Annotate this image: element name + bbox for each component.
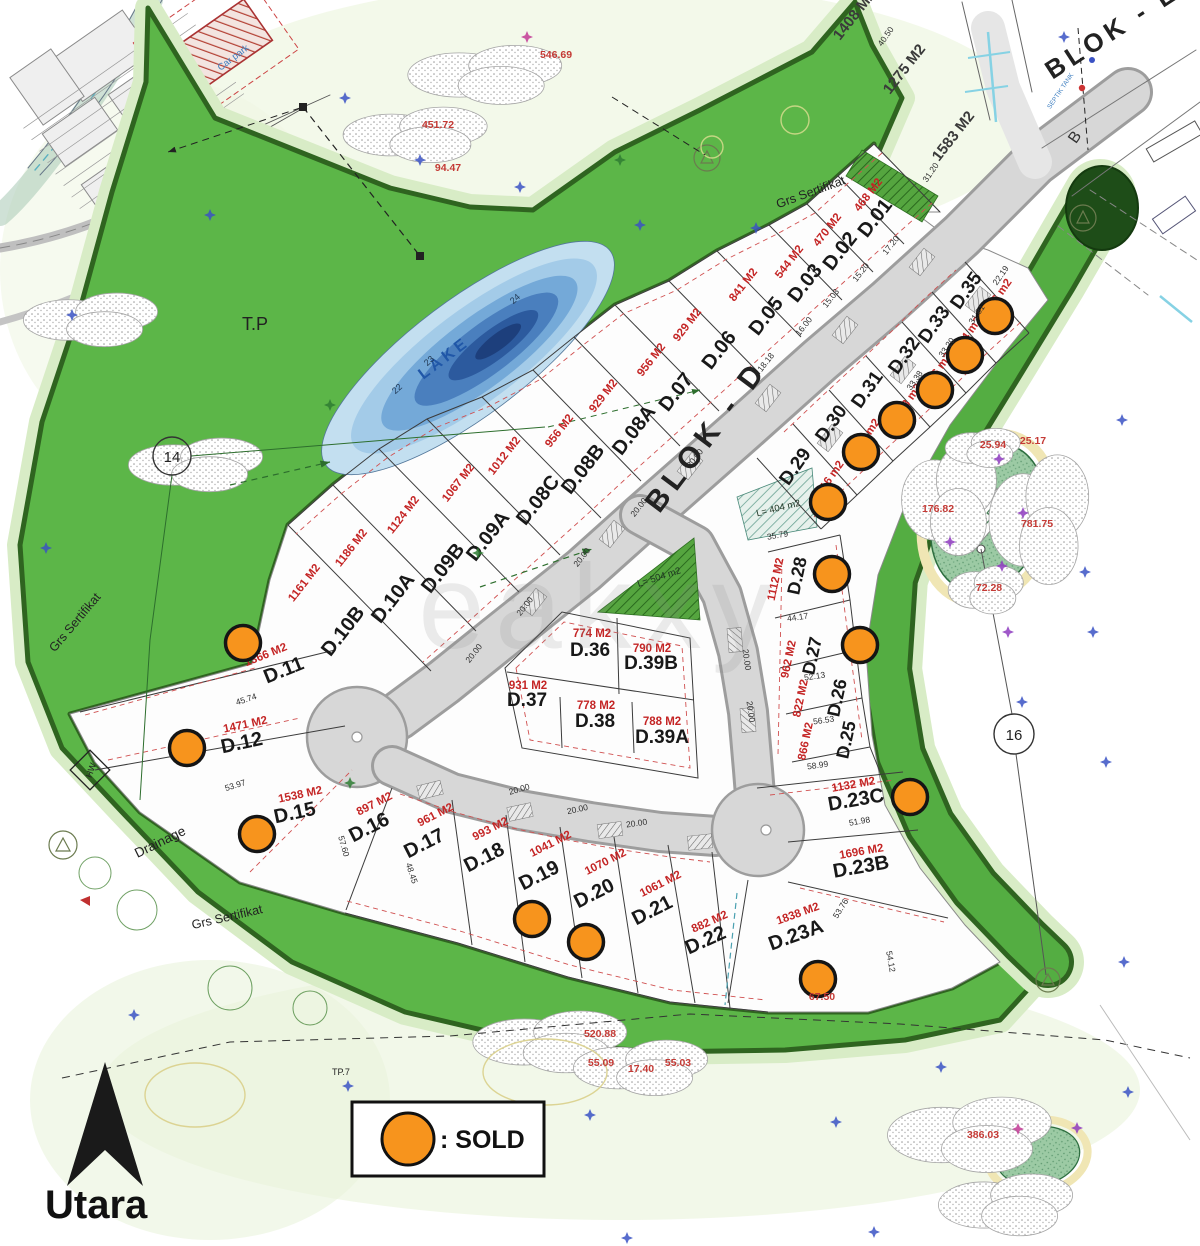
elevation-label: 72.28	[976, 582, 1002, 594]
ref-16-label: 16	[1006, 727, 1023, 744]
legend-sold-swatch	[382, 1113, 434, 1165]
sold-marker	[170, 731, 205, 766]
elevation-label: 176.82	[922, 503, 954, 515]
ref-circle-16: 16	[994, 714, 1034, 754]
elevation-label: 94.47	[435, 162, 461, 174]
plot-label: D.37	[507, 690, 547, 711]
plot-area-label: 788 M2	[643, 716, 681, 728]
sold-marker	[880, 403, 915, 438]
sold-marker	[569, 925, 604, 960]
plot-label: D.38	[575, 711, 615, 732]
elevation-label: 25.94	[980, 439, 1006, 451]
plot-label: D.39A	[635, 727, 689, 748]
ref-14-label: 14	[164, 449, 181, 466]
map-canvas: GREEN	[0, 0, 1200, 1246]
outcrop-cloud	[67, 312, 143, 347]
outcrop-cloud	[172, 457, 248, 492]
elevation-label: 55.03	[665, 1057, 691, 1069]
cul-de-sac-east	[712, 784, 804, 876]
sold-marker	[844, 435, 879, 470]
plot-area-label: 931 M2	[509, 680, 547, 692]
sold-marker	[843, 628, 878, 663]
road-hatch-mark	[687, 834, 712, 850]
elevation-label: 67.50	[809, 991, 835, 1003]
sold-marker	[515, 902, 550, 937]
sold-marker	[240, 817, 275, 852]
watermark: eakxy	[418, 540, 781, 674]
elevation-label: 520.88	[584, 1028, 616, 1040]
sold-marker	[918, 373, 953, 408]
elevation-label: 451.72	[422, 119, 454, 131]
outcrop-cloud	[390, 127, 471, 163]
elevation-label: 546.69	[540, 49, 572, 61]
outcrop-cloud	[930, 489, 986, 556]
sold-marker	[811, 485, 846, 520]
legend: : SOLD	[352, 1102, 544, 1176]
tp-label: T.P	[242, 314, 268, 334]
elevation-label: 781.75	[1021, 518, 1053, 530]
elevation-label: 17.40	[628, 1063, 654, 1075]
sold-marker	[815, 557, 850, 592]
sold-marker	[978, 299, 1013, 334]
elevation-label: 55.09	[588, 1057, 614, 1069]
sold-marker	[226, 626, 261, 661]
elevation-label: 386.03	[967, 1129, 999, 1141]
elevation-label: 25.17	[1020, 435, 1046, 447]
road-hatch-mark	[597, 821, 623, 838]
plot-area-label: 778 M2	[577, 700, 615, 712]
tp7-label: TP.7	[332, 1067, 350, 1077]
site-plan-map: GREEN	[0, 0, 1200, 1246]
outcrop-cloud	[982, 1196, 1058, 1236]
compass-label: Utara	[45, 1183, 148, 1227]
sold-marker	[893, 780, 928, 815]
outcrop-cloud	[458, 66, 544, 104]
legend-sold-label: : SOLD	[440, 1126, 525, 1154]
